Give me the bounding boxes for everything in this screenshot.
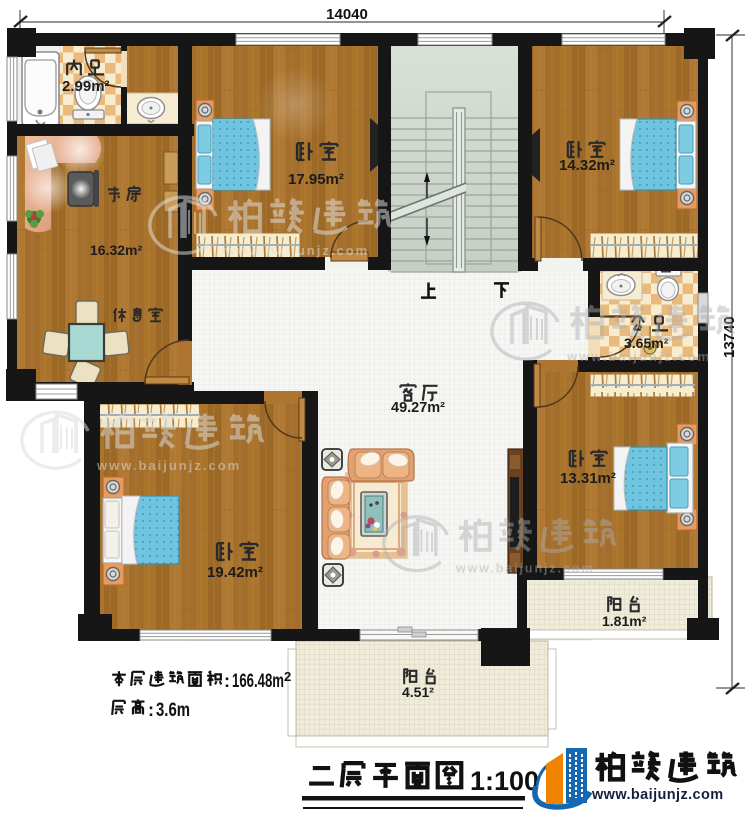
svg-text:19.42m²: 19.42m²: [207, 564, 263, 581]
svg-text:49.27m²: 49.27m²: [391, 400, 445, 416]
svg-text:2: 2: [284, 669, 291, 684]
svg-text::: :: [148, 700, 154, 720]
svg-text:1.81m²: 1.81m²: [602, 613, 647, 629]
svg-text:17.95m²: 17.95m²: [288, 171, 344, 188]
svg-text:166.48m: 166.48m: [232, 671, 284, 692]
svg-text:13.31m²: 13.31m²: [560, 470, 616, 487]
svg-text:16.32m²: 16.32m²: [90, 242, 142, 258]
svg-text:14.32m²: 14.32m²: [559, 157, 615, 174]
svg-text:www.baijunjz.com: www.baijunjz.com: [591, 787, 724, 803]
svg-text:14040: 14040: [326, 6, 368, 23]
svg-text::: :: [224, 671, 230, 691]
svg-text:2.99m²: 2.99m²: [62, 78, 110, 95]
svg-text:1:100: 1:100: [470, 766, 539, 796]
svg-text:3.6m: 3.6m: [156, 700, 190, 721]
svg-text:4.51²: 4.51²: [402, 684, 434, 700]
